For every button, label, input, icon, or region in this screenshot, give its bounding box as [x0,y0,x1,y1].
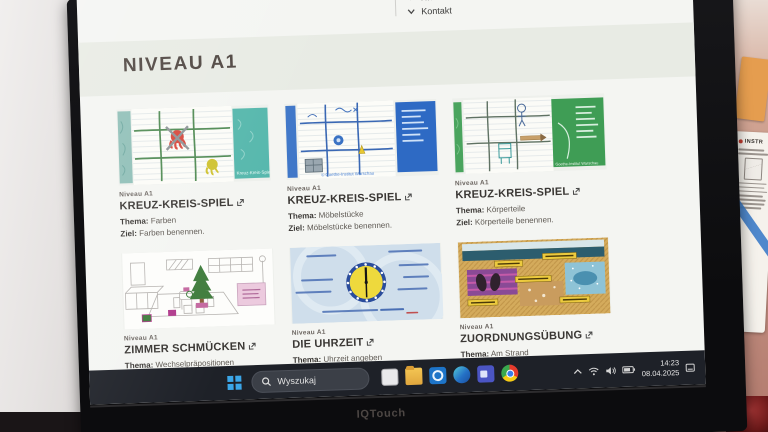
taskbar-clock[interactable]: 14:23 08.04.2025 [641,358,679,379]
card-grid: Kreuz-Kreis-Spiel Niveau A1 KREUZ-KREIS-… [116,93,613,393]
monitor-brand-logo: IQTouch [356,407,406,421]
menu-divider [394,0,396,16]
card-kreuz-kreis-spiel-moebel[interactable]: © Goethe-Institut Warschau Niveau A1 KRE… [284,99,441,244]
search-icon [261,377,271,387]
card-thumbnail-uhrzeit [289,243,443,324]
poster-text-line [737,182,767,185]
nav-menu: Niveau A2 Kontakt [407,0,463,21]
edge-icon[interactable] [453,366,471,384]
battery-icon[interactable] [623,366,636,374]
poster-text-line [736,186,764,189]
system-tray: 14:23 08.04.2025 [573,351,696,389]
taskview-icon[interactable] [381,368,399,386]
screen: Niveau A2 Kontakt NIVEAU A1 [77,0,706,405]
orange-paper [734,56,768,121]
teams-icon[interactable] [477,365,495,383]
chrome-icon[interactable] [501,364,519,382]
classroom-photo: INSTR Niveau A2 [0,0,768,432]
card-title-link[interactable]: KREUZ-KREIS-SPIEL [287,190,439,207]
chevron-down-icon [407,9,415,15]
card-thumbnail-tictactoe-koerper: Goethe-Institut Warschau [452,93,606,174]
card-thumbnail-tictactoe-moebel: © Goethe-Institut Warschau [284,99,438,180]
outlook-icon[interactable] [429,367,447,385]
poster-illustration [744,157,763,180]
volume-icon[interactable] [606,366,617,375]
menu-item-label: Niveau A2 [421,0,462,2]
monitor: Niveau A2 Kontakt NIVEAU A1 [67,0,748,432]
card-title-link[interactable]: ZUORDNUNGSÜBUNG [460,328,612,345]
external-link-icon [366,338,374,346]
search-placeholder: Wyszukaj [277,375,316,386]
menu-item-label: Kontakt [421,5,452,16]
chevron-down-icon [407,0,415,1]
poster-text-line [738,152,768,155]
external-link-icon [585,331,593,339]
card-title-link[interactable]: KREUZ-KREIS-SPIEL [455,184,607,201]
windows-start-button[interactable] [227,376,241,390]
card-kreuz-kreis-spiel-farben[interactable]: Kreuz-Kreis-Spiel Niveau A1 KREUZ-KREIS-… [116,105,273,250]
taskbar-apps [381,364,518,386]
card-thumbnail-zimmer [121,248,275,329]
external-link-icon [248,342,256,350]
card-thumbnail-tictactoe-farben: Kreuz-Kreis-Spiel [116,105,270,186]
poster-title: INSTR [739,138,768,146]
poster-red-dot [739,139,743,143]
card-title-link[interactable]: ZIMMER SCHMÜCKEN [124,339,276,356]
card-kreuz-kreis-spiel-koerper[interactable]: Goethe-Institut Warschau Niveau A1 KREUZ… [452,93,609,238]
wifi-icon[interactable] [589,366,600,375]
card-title-link[interactable]: DIE UHRZEIT [292,334,444,351]
external-link-icon [404,193,412,201]
search-box[interactable]: Wyszukaj [251,367,370,393]
card-title-link[interactable]: KREUZ-KREIS-SPIEL [119,195,271,212]
poster-text-line [738,148,764,151]
menu-item-niveau-a2[interactable]: Niveau A2 [407,0,462,3]
external-link-icon [572,187,580,195]
external-link-icon [236,198,244,206]
poster-text-line [736,190,767,193]
chevron-up-icon[interactable] [574,368,583,375]
page-title: NIVEAU A1 [123,52,239,78]
file-explorer-icon[interactable] [405,368,423,386]
notification-icon[interactable] [685,363,695,373]
menu-item-kontakt[interactable]: Kontakt [407,5,462,17]
clock-date: 08.04.2025 [642,368,680,379]
card-thumbnail-strand [457,237,611,318]
poster-text-line [736,194,763,197]
